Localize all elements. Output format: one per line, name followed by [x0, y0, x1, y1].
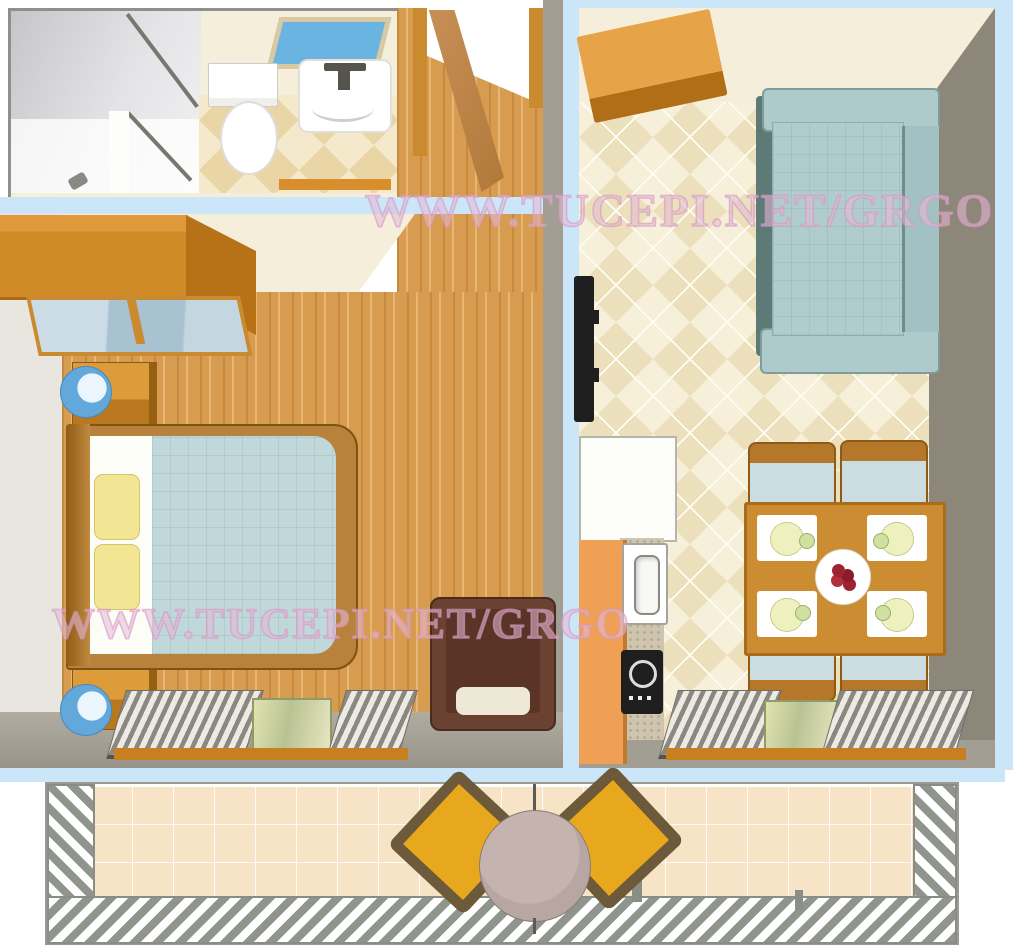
threshold-bedroom [114, 748, 408, 760]
shower-tray [11, 119, 201, 193]
burner-ring [629, 660, 657, 688]
patio-table [479, 810, 591, 922]
parasol-pole-bottom [533, 918, 536, 934]
toilet-bowl [220, 101, 278, 175]
sink-basin-edge [312, 95, 374, 122]
balcony-post-2 [795, 890, 803, 910]
toilet-tank [208, 63, 278, 107]
radiator-tab-1 [592, 310, 599, 324]
sink-faucet-stem [338, 70, 350, 90]
fruit-decor [832, 564, 845, 577]
entry-door-frame-right [529, 8, 543, 108]
blue-band-top-right [563, 0, 1013, 8]
balcony-rail-right [913, 784, 957, 908]
armchair-cushion [456, 687, 530, 715]
wardrobe-front [0, 215, 188, 300]
sink-basin [634, 555, 660, 615]
kitchen-cabinet [579, 540, 627, 764]
cooktop-knobs [629, 696, 633, 700]
apple-2 [873, 533, 889, 549]
lamp-top [60, 366, 112, 418]
radiator-tab-2 [592, 368, 599, 382]
wardrobe-door-divider [127, 300, 145, 344]
threshold-living [666, 748, 966, 760]
wall-radiator [574, 276, 594, 422]
apple-3 [795, 605, 811, 621]
apple-1 [799, 533, 815, 549]
blue-band-bottom [0, 768, 1005, 782]
bathroom [8, 8, 403, 202]
watermark-bottom: WWW.TUCEPI.NET/GRGO [52, 600, 631, 649]
sink [298, 59, 392, 133]
cooktop [621, 650, 663, 714]
pillow-1 [94, 474, 140, 540]
dining-table [744, 502, 946, 656]
entry-door-frame-left [413, 8, 427, 156]
parasol-pole-top [533, 784, 536, 812]
fridge [579, 436, 677, 542]
lamp-bottom [60, 684, 112, 736]
blue-band-right [995, 0, 1013, 770]
floor-plan: WWW.TUCEPI.NET/GRGO WWW.TUCEPI.NET/GRGO [0, 0, 1024, 945]
watermark-top: WWW.TUCEPI.NET/GRGO [365, 184, 994, 238]
center-plate [815, 549, 871, 605]
shower-glass-strip [109, 111, 129, 193]
apple-4 [875, 605, 891, 621]
window-bedroom [252, 698, 332, 750]
balcony [45, 782, 959, 945]
wardrobe-glass-doors [26, 296, 253, 356]
